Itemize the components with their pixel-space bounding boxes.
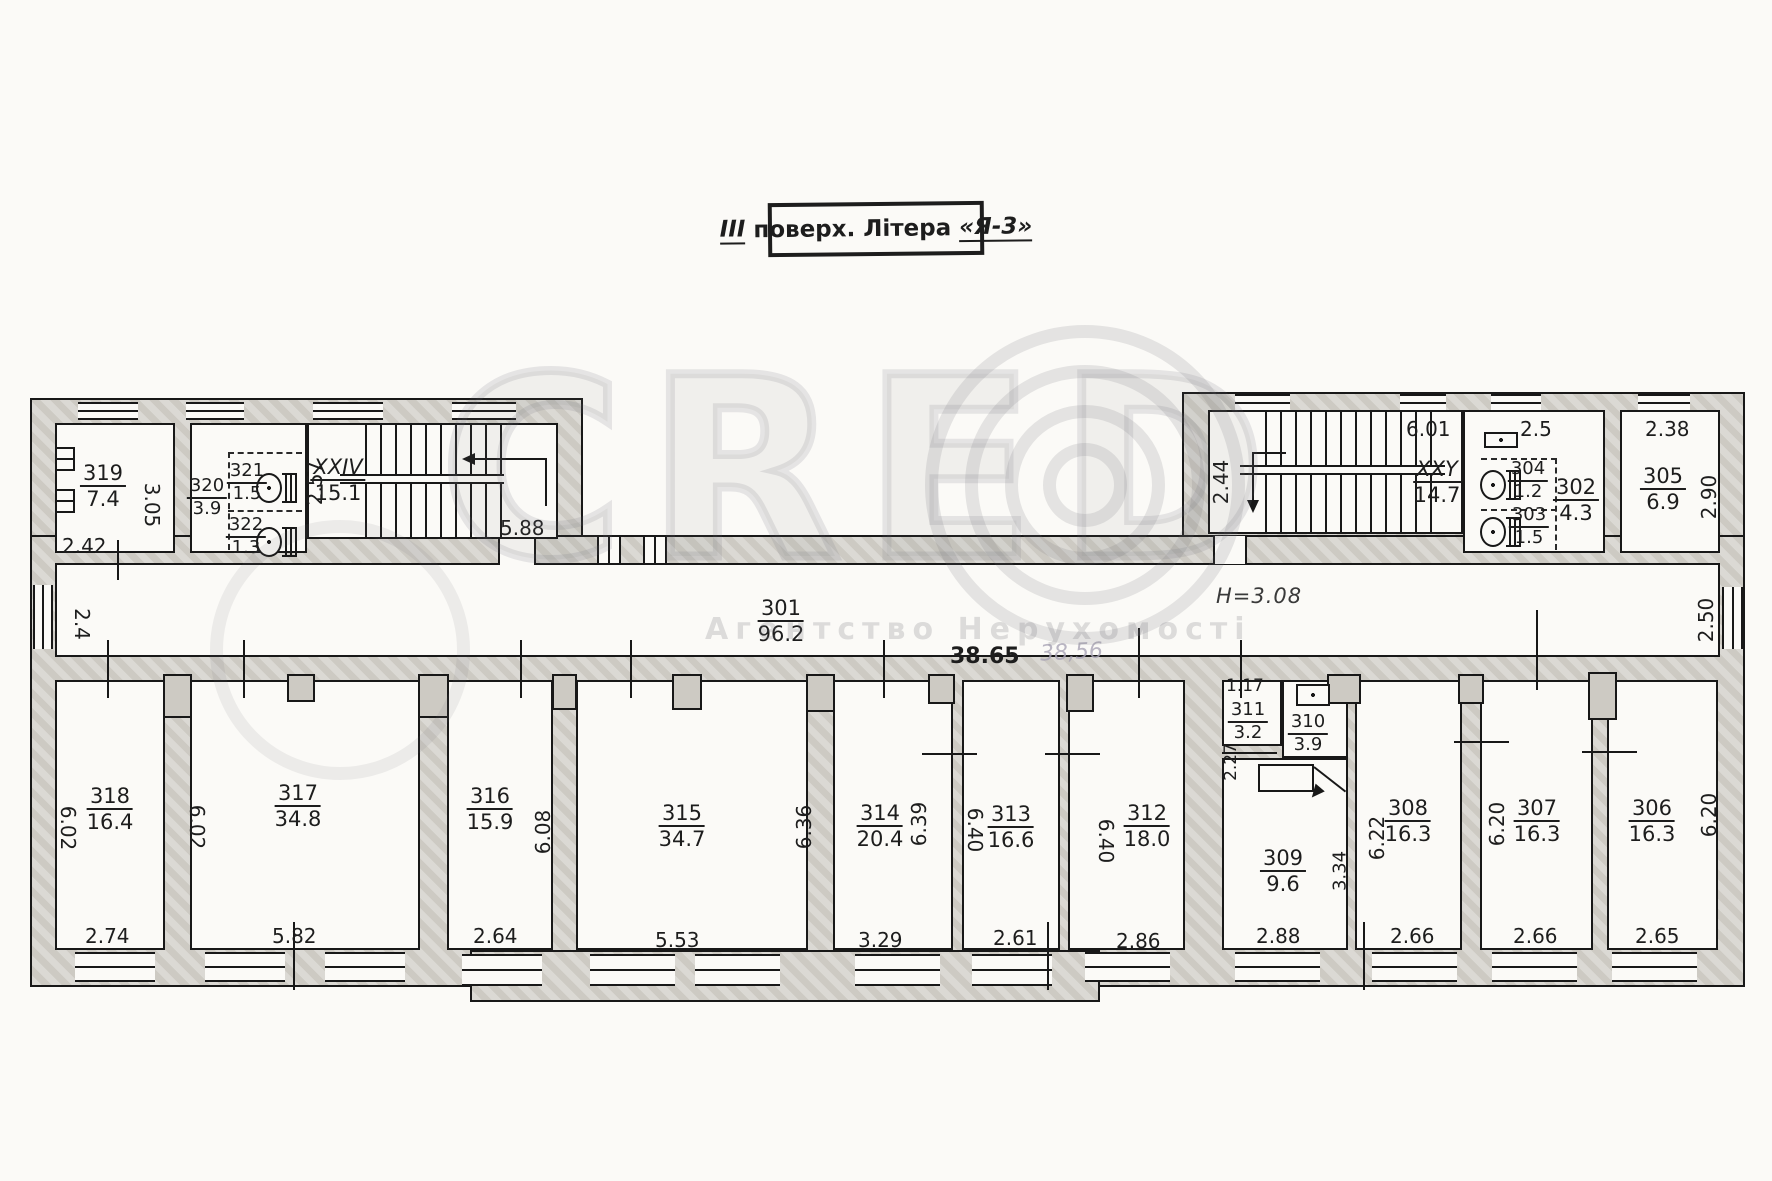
- room-label-322: 322 1.3: [226, 515, 266, 558]
- room-label-318: 318 16.4: [87, 784, 134, 834]
- wall-stub: [287, 674, 315, 702]
- stair-arrow-line: [1252, 452, 1286, 454]
- room-number: 309: [1260, 846, 1306, 872]
- sink-icon: [1484, 432, 1518, 448]
- radiator-icon: [55, 447, 75, 471]
- stall-partition: [228, 510, 302, 512]
- wall-stub: [1588, 672, 1617, 720]
- dim-317-height: 6.02: [185, 805, 209, 850]
- room-label-320: 320 3.9: [187, 476, 227, 519]
- shower-tray: [1258, 764, 1314, 792]
- room-number: 302: [1553, 475, 1599, 501]
- dim-305-top: 2.38: [1645, 417, 1690, 441]
- window: [452, 402, 516, 420]
- dim-stair-right-landing: 2.44: [1209, 460, 1233, 505]
- room-area: 1.2: [1508, 482, 1548, 503]
- room-label-308: 308 16.3: [1385, 796, 1432, 846]
- dim-314-height-right: 6.39: [907, 802, 931, 847]
- room-label-301-corridor: 301 96.2: [758, 596, 805, 646]
- window: [695, 954, 780, 986]
- dim-317-width: 5.82: [272, 924, 317, 948]
- room-number: 310: [1288, 712, 1328, 735]
- window-corridor-west: [33, 585, 53, 649]
- room-number: 303: [1509, 505, 1549, 528]
- room-area: 4.3: [1553, 501, 1599, 525]
- room-area: 1.5: [227, 484, 267, 505]
- floor-plan-sheet: 2.42 5.88 6.01 2.5 2.38 1.17 38.65 38,56…: [0, 0, 1772, 1181]
- room-number: 318: [87, 784, 133, 810]
- wall-joint-mark: [643, 537, 667, 563]
- dim-313-height: 6.40: [963, 808, 987, 853]
- room-label-304: 304 1.2: [1508, 459, 1548, 502]
- dim-stair-right-top: 6.01: [1406, 417, 1451, 441]
- corridor-301: [55, 563, 1720, 657]
- stall-partition: [228, 452, 302, 454]
- stair-arrow-line: [475, 458, 547, 460]
- room-area: 3.9: [187, 499, 227, 520]
- window: [972, 954, 1052, 986]
- dim-314-height-left: 6.36: [792, 805, 816, 850]
- room-label-311: 311 3.2: [1228, 700, 1268, 743]
- wall-stub: [418, 674, 449, 718]
- dim-307-width: 2.66: [1513, 924, 1558, 948]
- window: [186, 402, 244, 420]
- dim-308-width: 2.66: [1390, 924, 1435, 948]
- dimension-tick: [883, 640, 885, 698]
- room-number: 315: [659, 801, 705, 827]
- room-number: 314: [857, 801, 903, 827]
- window: [1400, 394, 1446, 412]
- dim-318-height: 6.02: [56, 806, 80, 851]
- room-area: 1.5: [1509, 528, 1549, 549]
- floor-word: поверх.: [753, 216, 855, 243]
- dimension-tick: [1138, 628, 1140, 698]
- wall-stub: [552, 674, 577, 710]
- room-area: 9.6: [1260, 872, 1306, 896]
- room-label-305: 305 6.9: [1640, 464, 1686, 514]
- room-area: 16.3: [1385, 822, 1432, 846]
- dimension-tick: [117, 540, 119, 580]
- room-label-317: 317 34.8: [275, 781, 322, 831]
- room-area: 3.9: [1288, 735, 1328, 756]
- room-area: 1.3: [226, 538, 266, 559]
- dimension-tick: [630, 640, 632, 698]
- dim-corridor-length: 38.65: [950, 644, 1020, 669]
- dim-stair-left-depth: 5.88: [500, 516, 545, 540]
- room-label-303: 303 1.5: [1509, 505, 1549, 548]
- room-number: XXY: [1413, 457, 1461, 483]
- room-label-302: 302 4.3: [1553, 475, 1599, 525]
- room-label-stair-xxiv: XXIV 15.1: [310, 455, 365, 505]
- room-label-310: 310 3.9: [1288, 712, 1328, 755]
- window: [205, 952, 285, 982]
- dim-315-height: 6.08: [531, 810, 555, 855]
- window: [462, 954, 542, 986]
- room-area: 96.2: [758, 622, 805, 646]
- room-number: 306: [1629, 796, 1675, 822]
- dim-302-top: 2.5: [1520, 417, 1552, 441]
- stair-arrow-line: [545, 458, 547, 506]
- room-label-314: 314 20.4: [857, 801, 904, 851]
- dimension-tick: [1454, 741, 1509, 743]
- room-number: 305: [1640, 464, 1686, 490]
- room-number: 320: [187, 476, 227, 499]
- dim-311-side: 2.27: [1221, 743, 1241, 781]
- window: [1235, 952, 1320, 982]
- radiator-icon: [55, 489, 75, 513]
- window: [1085, 952, 1170, 982]
- room-number: 308: [1385, 796, 1431, 822]
- room-label-315: 315 34.7: [659, 801, 706, 851]
- window: [590, 954, 675, 986]
- stair-arrow-icon: [1247, 500, 1259, 513]
- window: [1491, 394, 1541, 412]
- wall-stub: [1458, 674, 1484, 704]
- dim-307-height: 6.20: [1485, 802, 1509, 847]
- room-area: 15.1: [310, 481, 365, 505]
- stair-door-opening: [498, 539, 536, 565]
- room-number: 316: [467, 784, 513, 810]
- dim-corridor-east: 2.50: [1694, 598, 1718, 643]
- dim-corridor-west: 2.4: [70, 608, 94, 640]
- dim-318-width: 2.74: [85, 924, 130, 948]
- dimension-tick: [922, 753, 977, 755]
- room-label-321: 321 1.5: [227, 461, 267, 504]
- room-label-306: 306 16.3: [1629, 796, 1676, 846]
- room-area: 18.0: [1124, 827, 1171, 851]
- room-area: 16.4: [87, 810, 134, 834]
- dim-319-height: 3.05: [140, 483, 164, 528]
- wall-stub: [928, 674, 955, 704]
- room-area: 16.3: [1629, 822, 1676, 846]
- window: [1372, 952, 1457, 982]
- dim-312-height: 6.40: [1094, 819, 1118, 864]
- room-area: 16.3: [1514, 822, 1561, 846]
- room-area: 34.8: [275, 807, 322, 831]
- room-number: 312: [1124, 801, 1170, 827]
- dim-315-width: 5.53: [655, 928, 700, 952]
- dimension-tick: [1045, 753, 1100, 755]
- room-label-307: 307 16.3: [1514, 796, 1561, 846]
- window: [855, 954, 940, 986]
- dimension-tick: [520, 640, 522, 698]
- dim-312-width: 2.86: [1116, 929, 1161, 953]
- room-area: 34.7: [659, 827, 706, 851]
- dim-305-side: 2.90: [1697, 475, 1721, 520]
- wall-stub: [806, 674, 835, 712]
- stair-arrow-line: [1252, 452, 1254, 502]
- room-number: 322: [226, 515, 266, 538]
- dim-309-side: 3.34: [1330, 851, 1351, 891]
- window: [313, 402, 383, 420]
- wall-stub: [672, 674, 702, 710]
- dim-319-width: 2.42: [62, 534, 107, 558]
- dimension-tick: [1363, 922, 1365, 990]
- window: [1612, 952, 1697, 982]
- stair-arrow-icon: [462, 453, 475, 465]
- wall-stub: [1327, 674, 1361, 704]
- room-label-309: 309 9.6: [1260, 846, 1306, 896]
- room-label-312: 312 18.0: [1124, 801, 1171, 851]
- room-label-313: 313 16.6: [988, 802, 1035, 852]
- stair-door-opening: [1213, 536, 1247, 564]
- floor-number: ІІІ: [720, 216, 746, 244]
- room-number: 321: [227, 461, 267, 484]
- room-number: 313: [988, 802, 1034, 828]
- room-number: 307: [1514, 796, 1560, 822]
- wall-stub: [1066, 674, 1094, 712]
- window: [78, 402, 138, 420]
- window-corridor-east: [1722, 587, 1743, 649]
- dimension-tick: [1582, 751, 1637, 753]
- window: [75, 952, 155, 982]
- dimension-tick: [1536, 610, 1538, 690]
- dimension-tick: [107, 640, 109, 698]
- watermark-circle: [1043, 443, 1127, 527]
- room-number: 317: [275, 781, 321, 807]
- room-label-319: 319 7.4: [80, 461, 126, 511]
- room-number: 304: [1508, 459, 1548, 482]
- wall-joint-mark: [597, 537, 621, 563]
- room-number: XXIV: [310, 455, 365, 481]
- window: [1638, 394, 1690, 412]
- room-number: 301: [758, 596, 804, 622]
- room-number: 319: [80, 461, 126, 487]
- room-area: 15.9: [467, 810, 514, 834]
- dim-306-width: 2.65: [1635, 924, 1680, 948]
- dim-314-width: 3.29: [858, 928, 903, 952]
- dim-311-top: 1.17: [1226, 676, 1264, 696]
- room-area: 20.4: [857, 827, 904, 851]
- dim-309-width: 2.88: [1256, 924, 1301, 948]
- dimension-tick: [243, 640, 245, 698]
- dim-corridor-length-pencil: 38,56: [1039, 638, 1103, 666]
- dim-306-height: 6.20: [1697, 793, 1721, 838]
- dim-316-width: 2.64: [473, 924, 518, 948]
- room-area: 7.4: [80, 487, 126, 511]
- room-label-316: 316 15.9: [467, 784, 514, 834]
- window: [1492, 952, 1577, 982]
- room-area: 3.2: [1228, 723, 1268, 744]
- dim-313-width: 2.61: [993, 926, 1038, 950]
- window: [325, 952, 405, 982]
- dimension-tick: [1047, 922, 1049, 990]
- window: [1235, 394, 1290, 412]
- sink-icon: [1296, 684, 1330, 706]
- title-block: ІІІ поверх. Літера «Я-3»: [768, 201, 985, 257]
- room-label-stair-xxy: XXY 14.7: [1413, 457, 1461, 507]
- litera-word: Літера: [863, 215, 951, 242]
- litera-value: «Я-3»: [959, 213, 1032, 242]
- room-area: 16.6: [988, 828, 1035, 852]
- room-area: 14.7: [1413, 483, 1461, 507]
- ceiling-height-note: H=3.08: [1216, 584, 1302, 608]
- room-area: 6.9: [1640, 490, 1686, 514]
- wall-stub: [163, 674, 192, 718]
- room-number: 311: [1228, 700, 1268, 723]
